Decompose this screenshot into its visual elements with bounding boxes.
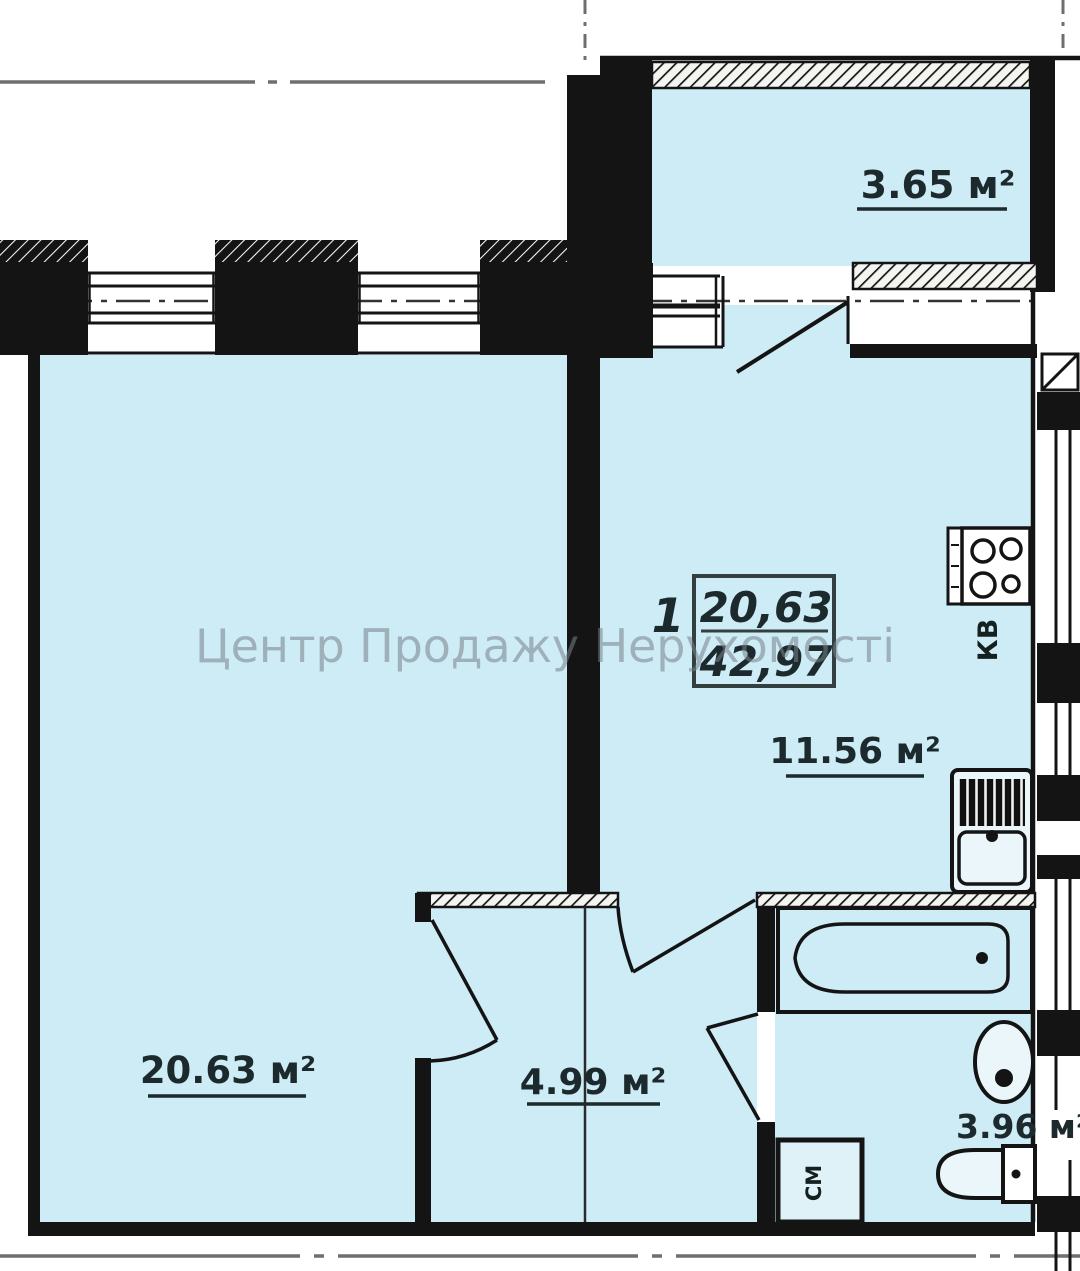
hallway-left-wall-top [415, 893, 431, 922]
sink-faucet [986, 830, 998, 842]
washing-machine-label: СМ [802, 1165, 826, 1201]
bathroom-top-wall [757, 893, 1035, 907]
balcony-area-label: 3.65 м² [861, 163, 1016, 207]
wall-pier [1037, 643, 1080, 703]
wall-pier [1037, 392, 1080, 430]
wall-pier [1037, 855, 1080, 879]
wall-pier [1037, 1010, 1080, 1056]
wall-pier [0, 262, 88, 355]
hallway-left-wall-bottom [415, 1058, 431, 1236]
living-room-area-label: 20.63 м² [140, 1049, 316, 1092]
wall-pier [1037, 1196, 1080, 1232]
wall-pier [215, 262, 358, 355]
bathroom-area-label: 3.96 м² [956, 1107, 1080, 1146]
floor-plan-page: КВ СМ 1 20,63 42,97 3.65 м² 11.56 м² [0, 0, 1080, 1271]
pier-hatch [215, 240, 358, 264]
hallway-area-label: 4.99 м² [520, 1062, 667, 1103]
bathroom-left-wall-top [757, 907, 775, 1012]
hallway-top-wall [418, 893, 618, 907]
balcony-bottom-pier [600, 263, 653, 358]
stove-label: КВ [973, 619, 1004, 662]
balcony-wall-left [600, 57, 652, 292]
floor-plan-drawing: КВ СМ 1 20,63 42,97 3.65 м² 11.56 м² [0, 0, 1080, 1271]
washbasin-icon [975, 1022, 1033, 1102]
kitchen-top-wall [850, 344, 1037, 358]
stove-icon [948, 528, 1030, 604]
sink-drainer [959, 779, 1025, 826]
partition-wall-main [567, 75, 600, 907]
kitchen-area-label: 11.56 м² [769, 731, 941, 772]
balcony-wall-right [1030, 57, 1055, 292]
toilet-icon [938, 1146, 1035, 1202]
bathtub-drain [976, 952, 988, 964]
wall-pier [1037, 775, 1080, 821]
wall-left [28, 355, 40, 1236]
watermark-text: Центр Продажу Нерухомості [195, 619, 895, 673]
balcony-glazing-bottom [853, 263, 1037, 289]
wall-bottom [28, 1222, 1035, 1236]
hallway-opening-floor [618, 893, 757, 907]
pier-hatch [0, 240, 88, 264]
balcony-glazing-top [652, 62, 1030, 88]
bathroom-left-wall-bottom [757, 1122, 775, 1236]
kitchen-sink-icon [952, 770, 1032, 892]
